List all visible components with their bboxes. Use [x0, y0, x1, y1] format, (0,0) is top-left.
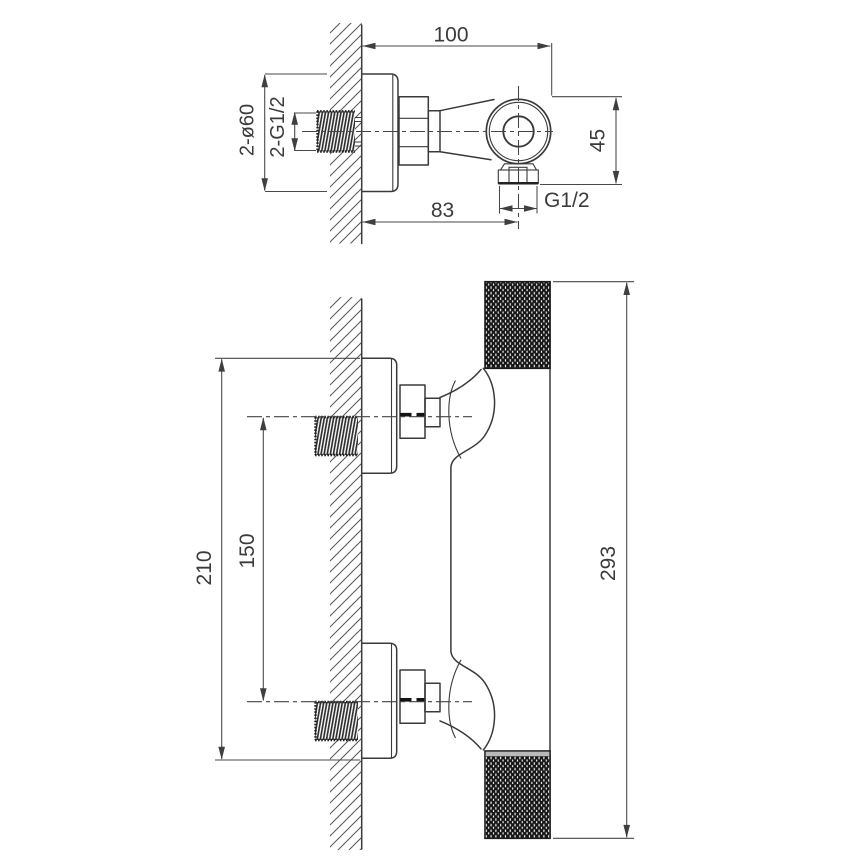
- dim-83: 83: [363, 199, 518, 225]
- arrowhead: [363, 43, 376, 50]
- dim-text-150: 150: [236, 533, 259, 568]
- arrowhead: [524, 205, 537, 212]
- dim-text-100: 100: [433, 24, 468, 47]
- arrowhead: [260, 688, 267, 701]
- lower-collar: [425, 683, 440, 711]
- wall-section-hatch: [330, 297, 362, 850]
- front-view: 210 150 293: [193, 282, 634, 850]
- arrowhead: [291, 138, 298, 151]
- arrowhead: [613, 171, 620, 184]
- side-view: 100 45 83 G1/2: [237, 23, 623, 244]
- dim-text-83: 83: [431, 199, 454, 222]
- body-left-profile: [451, 368, 495, 750]
- lower-hex-nut: [400, 670, 440, 723]
- dim-text-45: 45: [587, 129, 610, 152]
- upper-bell-rim: [449, 381, 461, 459]
- arrowhead: [261, 178, 268, 191]
- knob-cap-highlight: [486, 752, 549, 756]
- arrowhead: [291, 112, 298, 125]
- dim-text-inlet-thread: 2-G1/2: [267, 96, 289, 157]
- upper-bell-top-curve: [440, 370, 481, 398]
- upper-hex-nut: [400, 385, 440, 438]
- dim-150: 150: [236, 417, 267, 701]
- dim-text-210: 210: [193, 550, 216, 585]
- shower-mixer-dimension-drawing: 100 45 83 G1/2: [0, 0, 868, 868]
- arrowhead: [613, 97, 620, 110]
- dim-inlet-thread: 2-G1/2: [267, 96, 316, 157]
- dim-45: 45: [540, 97, 622, 185]
- arrowhead: [261, 74, 268, 87]
- hex-nut: [399, 97, 428, 165]
- lower-escutcheon: [362, 643, 397, 758]
- arrowhead: [363, 219, 376, 226]
- dim-text-293: 293: [597, 546, 620, 581]
- lower-bell-bottom-curve: [440, 721, 481, 749]
- lower-knob: [485, 751, 550, 838]
- arrowhead: [623, 825, 630, 838]
- dim-text-flange-diameter: 2-ø60: [237, 104, 259, 156]
- arrowhead: [218, 359, 225, 372]
- arrowhead: [500, 205, 513, 212]
- upper-knob: [485, 282, 550, 369]
- upper-inlet-thread: [315, 417, 358, 455]
- arrowhead: [623, 282, 630, 295]
- arrowhead: [538, 43, 551, 50]
- lower-bell-rim: [449, 660, 461, 738]
- lower-inlet-thread: [315, 702, 358, 740]
- dim-100: 100: [363, 24, 552, 96]
- arrowhead: [218, 747, 225, 760]
- escutcheon: [362, 74, 398, 192]
- dim-outlet-thread: G1/2: [500, 186, 590, 214]
- arrowhead: [505, 219, 518, 226]
- upper-escutcheon: [362, 358, 397, 473]
- technical-drawing-page: 100 45 83 G1/2: [0, 0, 868, 868]
- arrowhead: [260, 417, 267, 430]
- dim-text-outlet-thread: G1/2: [544, 189, 590, 212]
- upper-collar: [425, 398, 440, 426]
- dim-293: 293: [553, 282, 634, 839]
